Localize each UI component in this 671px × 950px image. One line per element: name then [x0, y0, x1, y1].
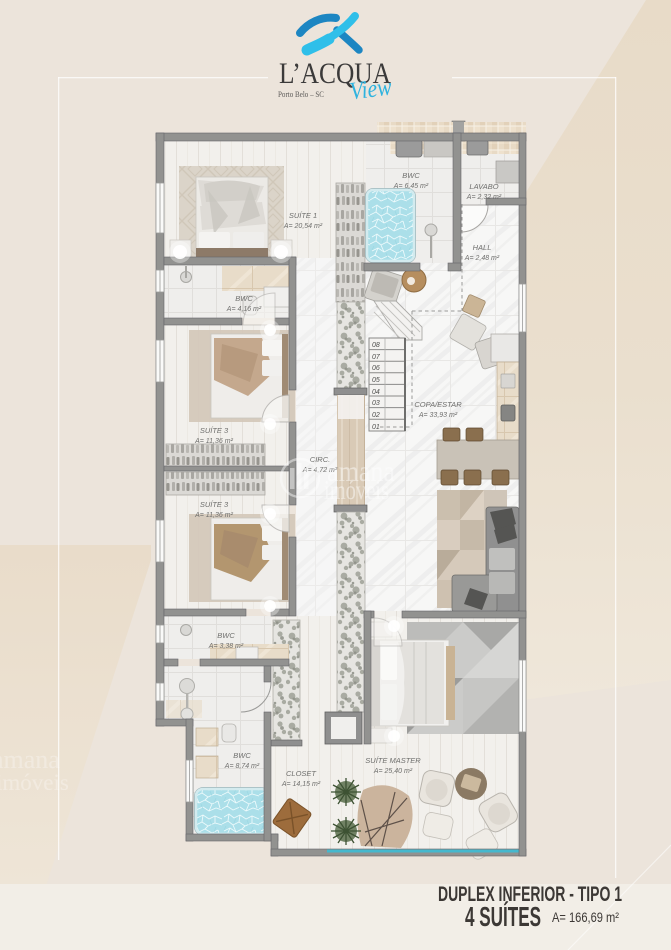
svg-text:imóveis: imóveis: [0, 770, 69, 795]
svg-text:08: 08: [372, 342, 380, 349]
svg-text:A= 8,74 m²: A= 8,74 m²: [224, 763, 260, 770]
svg-text:A= 33,93 m²: A= 33,93 m²: [418, 412, 458, 419]
svg-text:COPA/ESTAR: COPA/ESTAR: [414, 400, 462, 409]
svg-text:LAVABO: LAVABO: [469, 182, 498, 191]
svg-text:06: 06: [372, 365, 380, 372]
svg-text:A= 25,40 m²: A= 25,40 m²: [373, 768, 413, 775]
svg-text:HALL: HALL: [473, 243, 492, 252]
svg-text:4 SUÍTES: 4 SUÍTES: [465, 901, 541, 932]
svg-text:01: 01: [372, 424, 380, 431]
svg-text:View: View: [348, 74, 393, 106]
svg-text:A= 11,36 m²: A= 11,36 m²: [194, 512, 233, 519]
svg-text:A= 4,16 m²: A= 4,16 m²: [226, 306, 262, 313]
svg-text:03: 03: [372, 400, 380, 407]
svg-text:A= 3,38 m²: A= 3,38 m²: [208, 643, 244, 650]
svg-text:BWC: BWC: [402, 171, 420, 180]
svg-text:A= 20,54 m²: A= 20,54 m²: [283, 223, 323, 230]
svg-text:SUÍTE 3: SUÍTE 3: [200, 426, 229, 435]
svg-text:imóveis: imóveis: [324, 475, 389, 505]
svg-text:A= 166,69 m²: A= 166,69 m²: [552, 910, 619, 925]
svg-text:07: 07: [372, 354, 381, 361]
svg-text:A= 6,45 m²: A= 6,45 m²: [393, 183, 429, 190]
svg-text:SUÍTE 3: SUÍTE 3: [200, 500, 229, 509]
svg-text:A= 2,48 m²: A= 2,48 m²: [464, 255, 500, 262]
svg-text:SUÍTE MASTER: SUÍTE MASTER: [365, 756, 421, 765]
svg-text:SUÍTE 1: SUÍTE 1: [289, 211, 317, 220]
svg-text:A= 2,32 m²: A= 2,32 m²: [466, 194, 502, 201]
svg-text:A= 14,15 m²: A= 14,15 m²: [281, 781, 321, 788]
svg-text:04: 04: [372, 389, 380, 396]
svg-text:BWC: BWC: [235, 294, 253, 303]
svg-text:02: 02: [372, 412, 380, 419]
svg-text:A= 11,36 m²: A= 11,36 m²: [194, 438, 233, 445]
svg-text:CLOSET: CLOSET: [286, 769, 317, 778]
svg-text:05: 05: [372, 377, 380, 384]
svg-text:BWC: BWC: [217, 631, 235, 640]
svg-text:Porto Belo – SC: Porto Belo – SC: [278, 89, 324, 99]
svg-text:BWC: BWC: [233, 751, 251, 760]
